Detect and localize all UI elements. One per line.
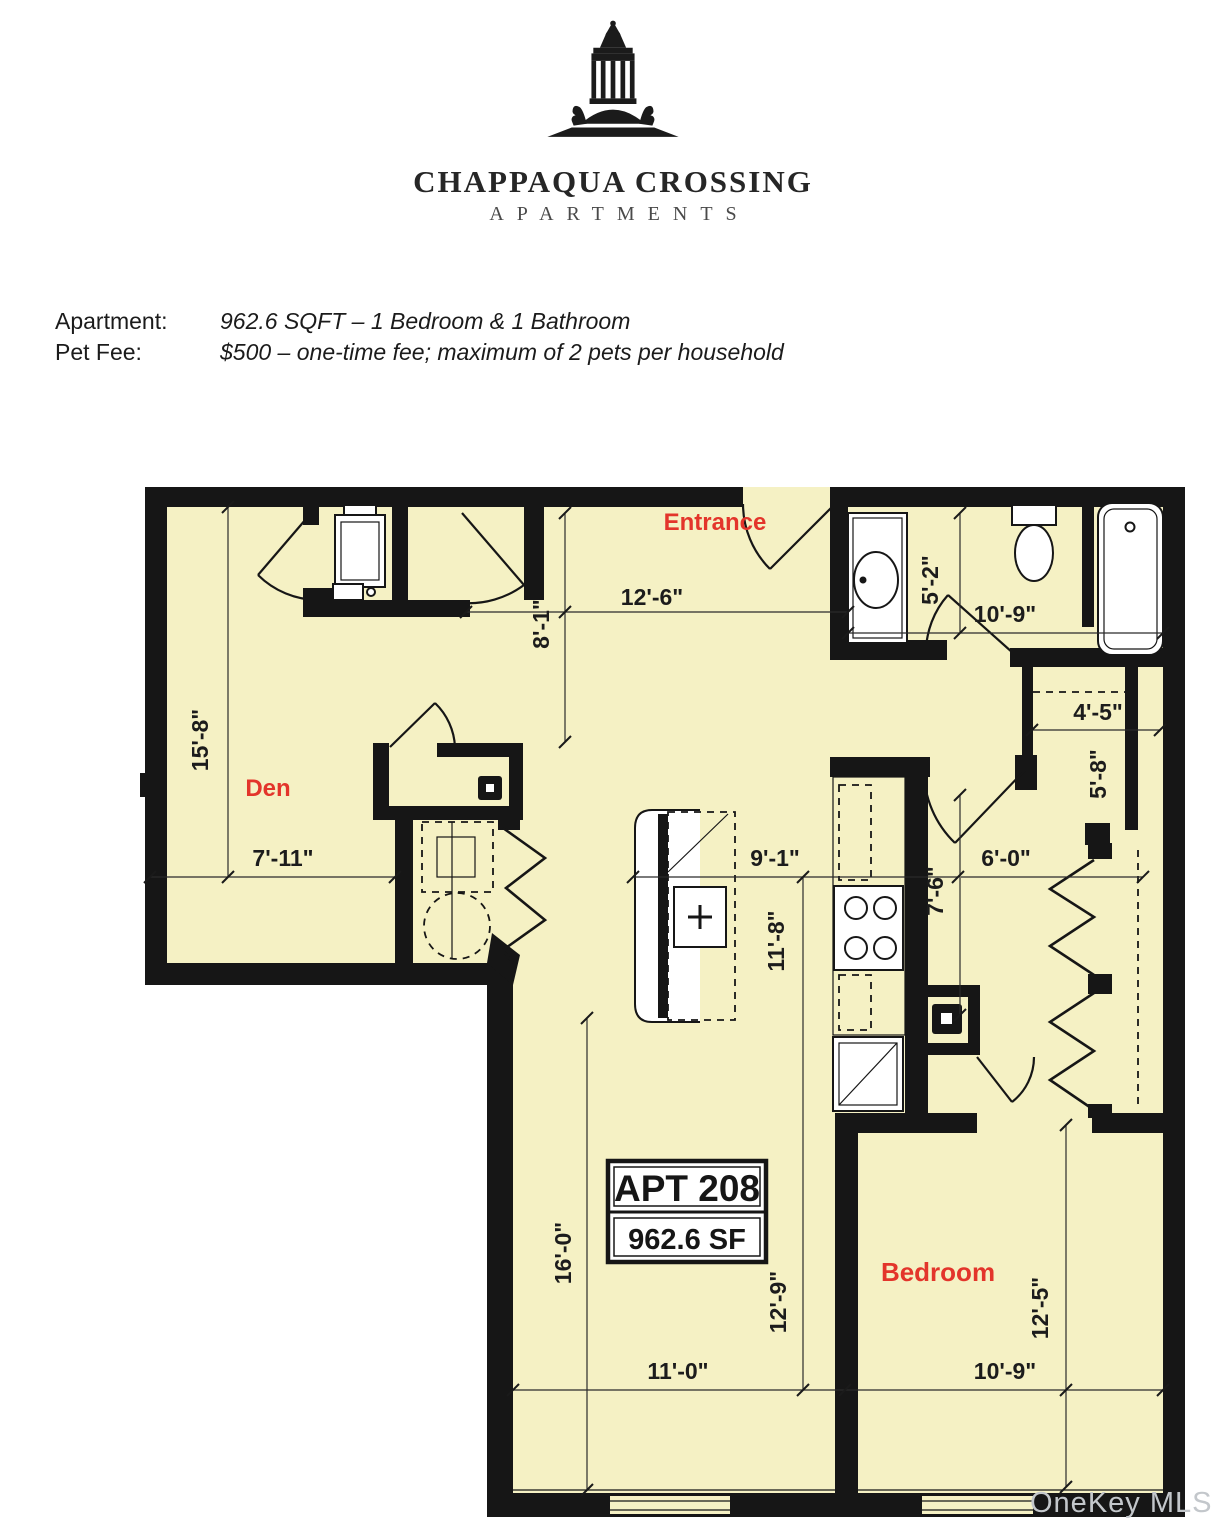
toilet (1012, 505, 1056, 581)
floorplan-drawing: 12'-6" 8'-1" 10'-9" 5'-2" 4'-5" 5'-8" 15… (140, 480, 1190, 1526)
island-sink (674, 887, 726, 947)
dim-den-width: 7'-11" (252, 845, 313, 871)
dim-living-inner-depth: 12'-9" (765, 1271, 791, 1333)
detail-value: 962.6 SQFT – 1 Bedroom & 1 Bathroom (220, 306, 630, 337)
dim-bath-depth: 5'-2" (917, 555, 943, 605)
dim-hall-width: 6'-0" (981, 845, 1031, 871)
logo-tagline: APARTMENTS (476, 203, 749, 226)
flyer-page: CHAPPAQUA CROSSING APARTMENTS Apartment:… (0, 0, 1226, 1536)
bathtub (1098, 503, 1163, 655)
apt-label-box: APT 208 962.6 SF (608, 1161, 766, 1262)
room-label-entrance: Entrance (664, 509, 767, 536)
unit-area: 962.6 SF (628, 1224, 746, 1256)
apartment-details: Apartment: 962.6 SQFT – 1 Bedroom & 1 Ba… (55, 306, 784, 368)
dim-kitchen-depth: 11'-8" (763, 910, 789, 971)
dim-living-depth: 16'-0" (550, 1222, 576, 1284)
dim-bedroom-width: 10'-9" (974, 1358, 1036, 1384)
stove (834, 886, 903, 970)
dim-bedroom-depth: 12'-5" (1027, 1277, 1053, 1339)
logo: CHAPPAQUA CROSSING APARTMENTS (0, 18, 1226, 226)
unit-number: APT 208 (614, 1168, 760, 1209)
logo-name: CHAPPAQUA CROSSING (413, 164, 813, 200)
onekey-mls-watermark: OneKey MLS (1030, 1487, 1225, 1520)
detail-row-apartment: Apartment: 962.6 SQFT – 1 Bedroom & 1 Ba… (55, 306, 784, 337)
detail-label: Pet Fee: (55, 337, 220, 368)
dim-bath-width: 10'-9" (974, 601, 1036, 627)
refrigerator (833, 1037, 903, 1111)
dim-den-depth: 15'-8" (187, 709, 213, 771)
detail-label: Apartment: (55, 306, 220, 337)
detail-row-pet-fee: Pet Fee: $500 – one-time fee; maximum of… (55, 337, 784, 368)
outlet-icon (478, 776, 502, 800)
dim-entry-depth: 8'-1" (528, 599, 554, 649)
vanity-sink (848, 513, 907, 643)
dim-hall-depth: 7'-6" (922, 866, 948, 916)
room-label-den: Den (245, 775, 290, 802)
washer-dryer (333, 505, 385, 600)
pantry-icon (932, 1004, 962, 1034)
dim-closet-depth: 5'-8" (1085, 749, 1111, 799)
room-label-bedroom: Bedroom (881, 1257, 995, 1287)
dim-entry-width: 12'-6" (621, 584, 683, 610)
dim-kitchen-width: 9'-1" (750, 845, 800, 871)
tower-with-horses-icon (538, 18, 688, 160)
dim-living-width: 11'-0" (647, 1358, 708, 1384)
detail-value: $500 – one-time fee; maximum of 2 pets p… (220, 337, 784, 368)
dim-linen-closet: 4'-5" (1073, 699, 1123, 725)
